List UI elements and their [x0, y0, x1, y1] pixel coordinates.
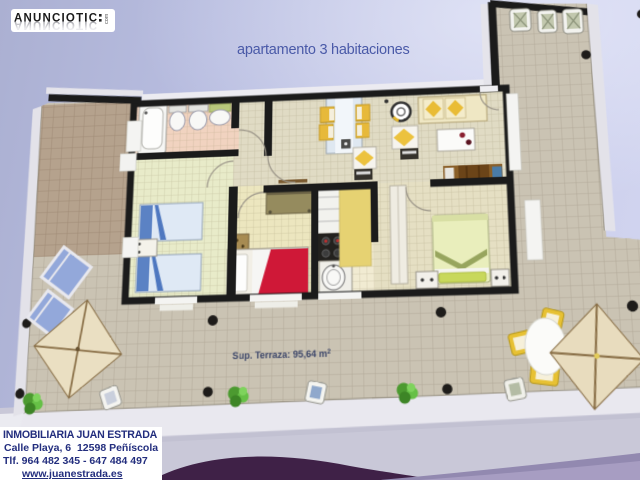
svg-text:com: com [104, 13, 110, 24]
svg-text:ANUNCIOTIC: ANUNCIOTIC [14, 19, 97, 31]
svg-text:Sup. Terraza: 95,64 m2: Sup. Terraza: 95,64 m2 [232, 348, 331, 361]
